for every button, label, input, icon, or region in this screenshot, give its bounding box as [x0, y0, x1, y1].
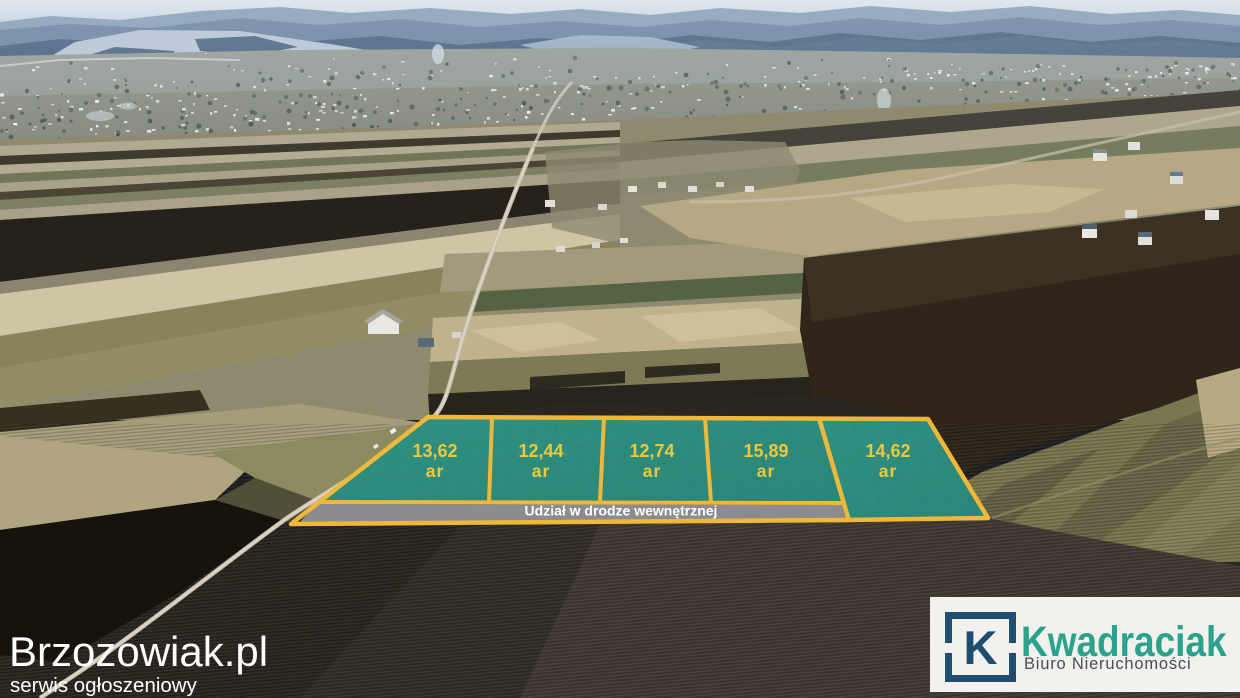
svg-text:15,89: 15,89 — [743, 441, 788, 461]
svg-text:ar: ar — [532, 461, 551, 481]
svg-text:Udział w drodze wewnętrznej: Udział w drodze wewnętrznej — [525, 503, 718, 519]
svg-text:13,62: 13,62 — [412, 441, 457, 461]
svg-text:12,74: 12,74 — [629, 441, 674, 461]
svg-text:12,44: 12,44 — [518, 441, 563, 461]
svg-text:ar: ar — [426, 461, 445, 481]
svg-text:14,62: 14,62 — [865, 441, 910, 461]
svg-text:ar: ar — [643, 461, 662, 481]
svg-text:ar: ar — [879, 461, 898, 481]
svg-text:ar: ar — [757, 461, 776, 481]
